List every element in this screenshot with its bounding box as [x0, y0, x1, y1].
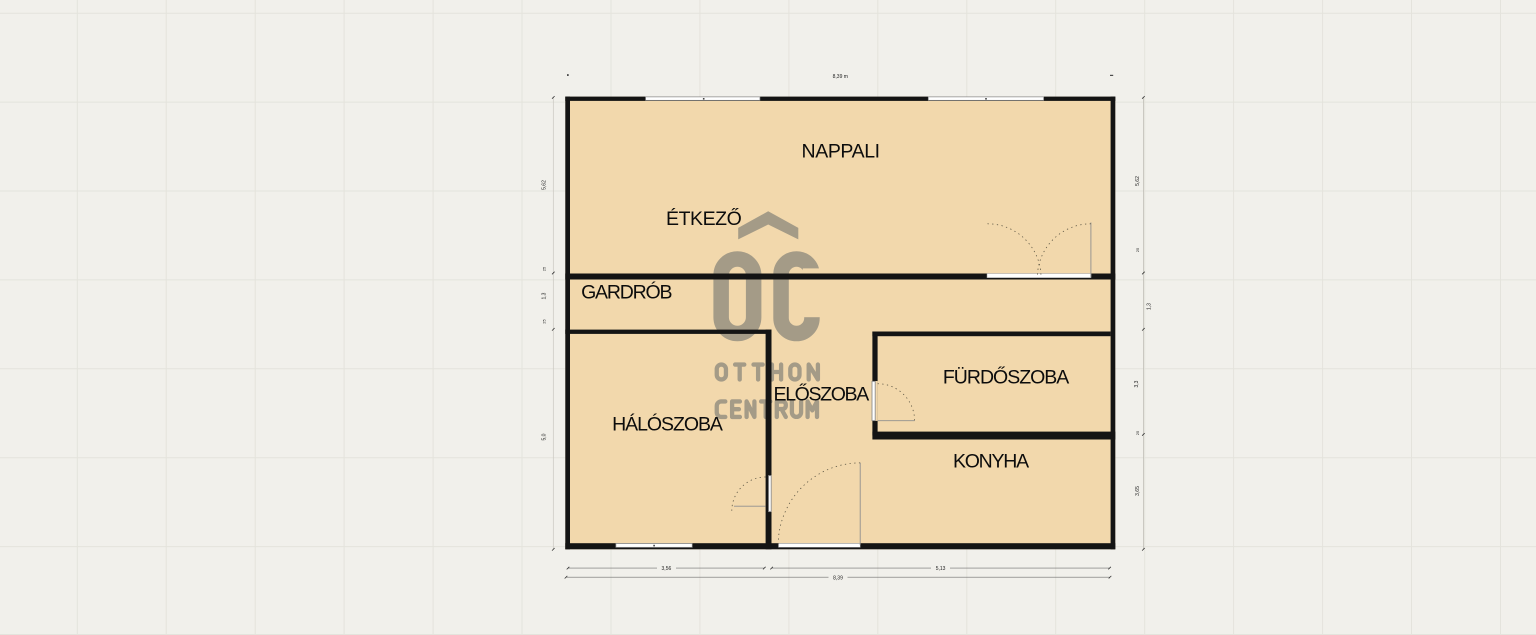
svg-text:8,39 m: 8,39 m [833, 74, 848, 80]
svg-text:ELŐSZOBA: ELŐSZOBA [774, 383, 870, 406]
svg-text:5,62: 5,62 [542, 180, 548, 190]
svg-text:25: 25 [1135, 430, 1140, 435]
svg-text:8,39: 8,39 [833, 575, 843, 581]
svg-text:ÉTKEZŐ: ÉTKEZŐ [666, 207, 742, 230]
svg-text:1,3: 1,3 [1147, 303, 1153, 310]
svg-text:HÁLÓSZOBA: HÁLÓSZOBA [612, 413, 723, 436]
svg-text:25: 25 [542, 319, 547, 324]
svg-text:KONYHA: KONYHA [953, 450, 1029, 472]
svg-text:3,3: 3,3 [1134, 380, 1140, 387]
svg-text:GARDRÓB: GARDRÓB [581, 281, 671, 304]
svg-text:5,13: 5,13 [936, 566, 946, 572]
svg-text:NAPPALI: NAPPALI [802, 141, 880, 163]
svg-text:1,3: 1,3 [542, 292, 548, 299]
svg-text:5,62: 5,62 [1135, 176, 1141, 186]
svg-text:25: 25 [542, 266, 547, 271]
svg-text:5,0: 5,0 [542, 433, 548, 440]
svg-text:25: 25 [1135, 247, 1140, 252]
svg-text:FÜRDŐSZOBA: FÜRDŐSZOBA [943, 366, 1069, 389]
svg-text:3,65: 3,65 [1135, 486, 1141, 496]
svg-text:3,56: 3,56 [662, 566, 672, 572]
